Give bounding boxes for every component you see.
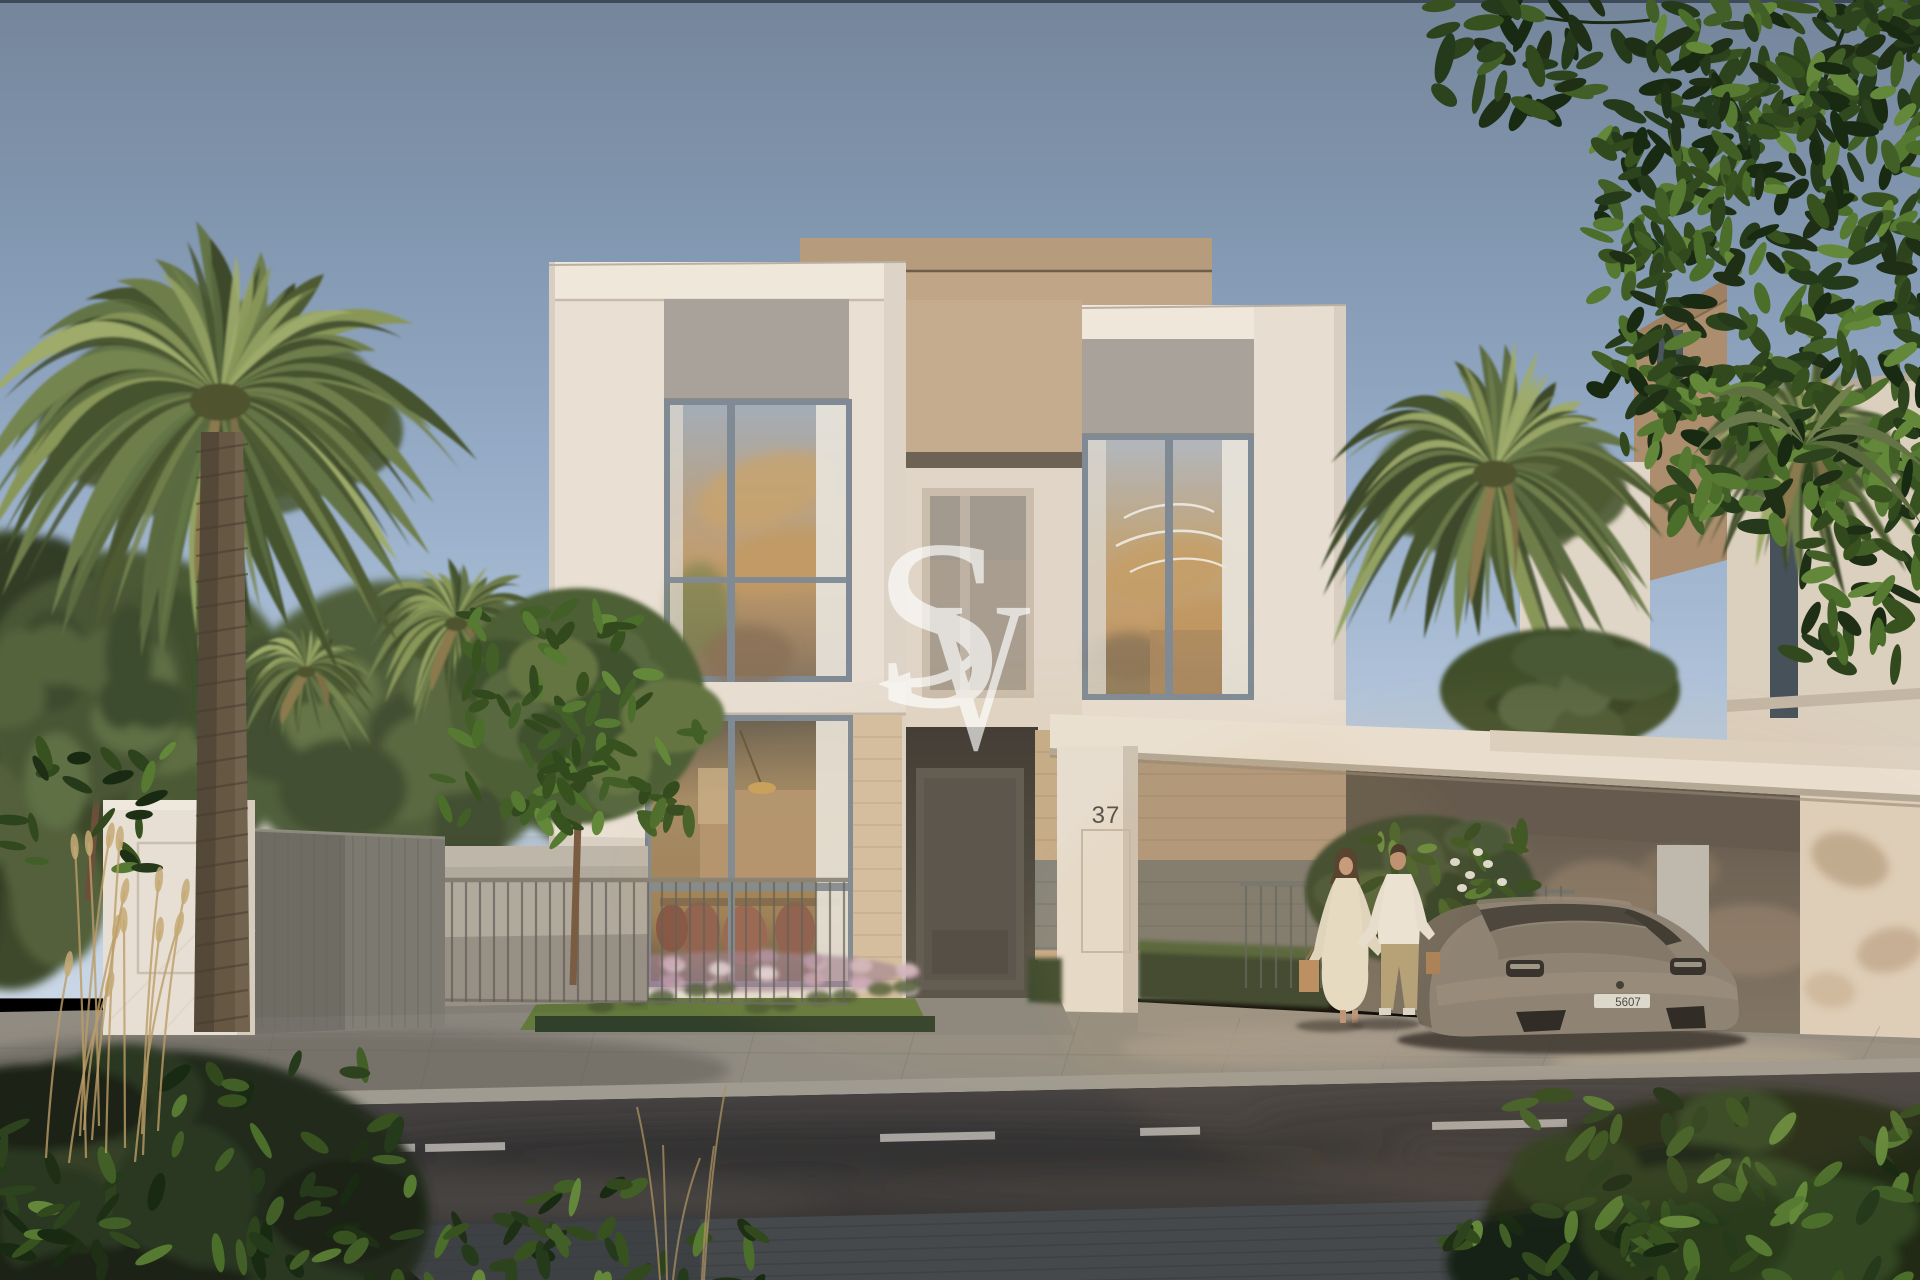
svg-text:S: S <box>872 489 1007 759</box>
